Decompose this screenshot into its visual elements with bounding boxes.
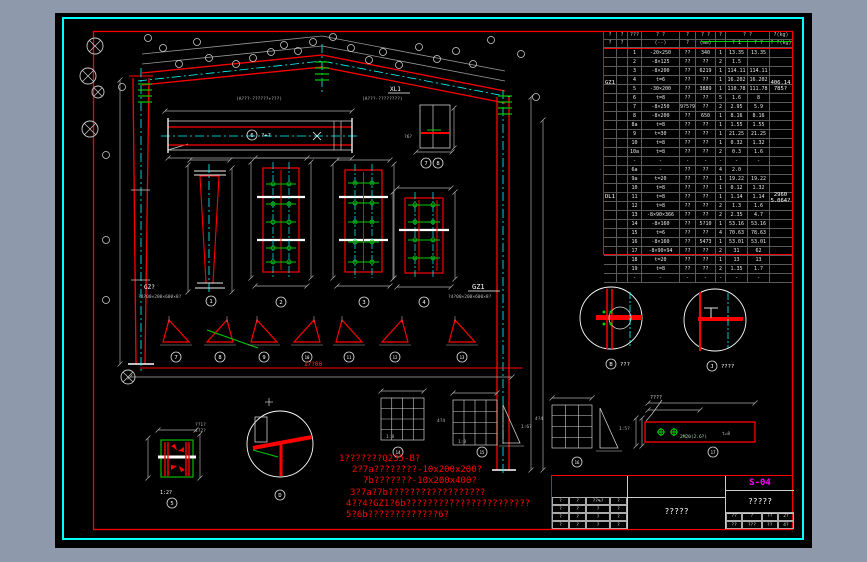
revision-cell: ? xyxy=(610,521,627,529)
group-label-gz1: GZ1 xyxy=(605,80,615,86)
strip-bolt-label: 2M20(2.6?) xyxy=(680,434,707,440)
table-row: 6a-????42.0 xyxy=(604,166,792,175)
title-block-cell: ?? xyxy=(762,512,778,521)
table-row: 12t=8????21.31.6 xyxy=(604,202,792,211)
grid1-scale-label: 1:8 xyxy=(386,434,394,440)
revision-cell: ??%? xyxy=(586,497,610,505)
note-line: 4??4?GZ1?6b??????????????????????? xyxy=(346,499,530,510)
revision-cell: ? xyxy=(569,505,586,513)
table-row: ?????? ??? ??? ??(kg) xyxy=(604,32,792,40)
table-row: 15t=6????470.6378.63 xyxy=(604,229,792,238)
strip-thickness-label: t=8 xyxy=(722,431,730,437)
revision-cell: ? xyxy=(610,497,627,505)
table-row: 17-8×90×94????23162 xyxy=(604,247,792,256)
column-section-detail xyxy=(158,440,196,477)
group2-total-alt: 5.064? xyxy=(769,198,792,204)
svg-text:?+?: ?+? xyxy=(261,133,271,139)
title-block: ????%?????????????? ????? S-04 ????? ???… xyxy=(551,475,793,530)
svg-text:B: B xyxy=(609,362,613,368)
title-block-cell: ?? xyxy=(726,512,742,521)
svg-text:D: D xyxy=(278,493,281,499)
gz1-label: GZ1 xyxy=(472,283,485,291)
project-name-cell: ????? xyxy=(628,476,726,529)
svg-text:10: 10 xyxy=(305,355,310,360)
revision-cell: ? xyxy=(569,513,586,521)
revision-cell: ? xyxy=(552,521,569,529)
svg-text:1: 1 xyxy=(209,299,212,305)
revision-table: ????%?????????????? xyxy=(552,476,628,529)
general-notes: 1???????Q235-B?2?7a????????-10x200x200?7… xyxy=(334,454,530,521)
table-row: 10t=8????10.121.32 xyxy=(604,184,792,193)
drawing-number: S-04 xyxy=(726,476,794,491)
svg-text:13: 13 xyxy=(460,355,465,360)
group1-total-alt: 785? xyxy=(769,86,792,92)
table-row: 5-30×200??38891110.78111.78 xyxy=(604,85,792,94)
note-line: 3?7a?7b?????????????????? xyxy=(350,488,530,499)
section-scale-label: 1:2? xyxy=(160,490,172,496)
table-row: 11t=8????11.141.14 xyxy=(604,193,792,202)
grid3-dim-label: 4?4 xyxy=(535,416,543,422)
svg-text:8: 8 xyxy=(436,161,439,167)
strip-callout-label: ???? xyxy=(650,395,662,401)
svg-text:3: 3 xyxy=(362,300,365,306)
table-row: 10t=8????10.321.32 xyxy=(604,139,792,148)
weld-detail-circle xyxy=(247,398,313,477)
title-block-cell: 2? xyxy=(778,512,794,521)
svg-text:8: 8 xyxy=(218,355,221,361)
revision-cell: ? xyxy=(552,505,569,513)
table-row: 19t=8????21.351.7 xyxy=(604,265,792,274)
drawing-number-cell: S-04 ????? ?????2????????4? xyxy=(726,476,794,529)
title-block-cell: 4? xyxy=(778,521,794,530)
header-accent-line xyxy=(701,41,792,42)
gz-left-sub-label: ?4?00×200×600×8? xyxy=(138,294,182,300)
table-row: ------- xyxy=(604,274,792,283)
svg-text:???: ??? xyxy=(620,362,630,368)
svg-text:9: 9 xyxy=(262,355,265,361)
gz1-sub-label: ?4?00×200×600×8? xyxy=(448,294,492,300)
table-row: 9t=30????121.2521.25 xyxy=(604,130,792,139)
title-block-cell: ??? xyxy=(742,521,761,530)
svg-text:7: 7 xyxy=(424,161,427,167)
table-row: 1-20×250??340113.3513.35 xyxy=(604,49,792,58)
table-row: 10at=8????20.31.6 xyxy=(604,148,792,157)
table-row: 16-8×160??5473153.0153.01 xyxy=(604,238,792,247)
svg-text:12: 12 xyxy=(393,355,398,360)
cad-viewer-window: { "colors": { "background": "#8e9aab", "… xyxy=(0,0,867,562)
svg-text:5: 5 xyxy=(170,501,173,507)
revision-cell: ? xyxy=(569,521,586,529)
table-row: 6t=8????51.68 xyxy=(604,94,792,103)
revision-cell: ? xyxy=(586,505,610,513)
note-line: 7b???????-10x200x400? xyxy=(363,476,530,487)
group1-total: 406.14 785? xyxy=(769,80,792,92)
svg-text:7: 7 xyxy=(174,355,177,361)
table-row: 7-8×2509?5?9??22.955.9 xyxy=(604,103,792,112)
svg-text:16: 16 xyxy=(575,460,580,465)
taper-column-detail xyxy=(194,164,226,293)
tri3-scale-label: 1:5? xyxy=(619,426,630,432)
detail-circle-j xyxy=(684,289,746,351)
table-row: ------- xyxy=(604,157,792,166)
revision-cell: ? xyxy=(569,497,586,505)
table-row: 18t=20????11313 xyxy=(604,256,792,265)
revision-cell: ? xyxy=(552,513,569,521)
grid2-scale-label: 1:8 xyxy=(458,439,466,445)
note-line: 2?7a????????-10x200x200? xyxy=(352,465,530,476)
beam-note-label: (A???·??????+???) xyxy=(236,96,282,102)
title-block-cell: ?? xyxy=(762,521,778,530)
note-line: 5?6b?????????????6? xyxy=(346,510,530,521)
group-label-dl1: DL1 xyxy=(605,194,615,200)
svg-text:4: 4 xyxy=(422,300,426,306)
table-row: 8-8×200??65018.168.16 xyxy=(604,112,792,121)
grid2-dim-label: 4?4 xyxy=(437,418,445,424)
section-dim1: ??1? xyxy=(195,422,206,428)
beam-detail xyxy=(161,118,358,153)
table-row: 3-8×200??62191114.11114.11 xyxy=(604,67,792,76)
title-block-cell: ? xyxy=(742,512,761,521)
table-row: 4t=6????116.20216.202 xyxy=(604,76,792,85)
revision-cell: ? xyxy=(586,513,610,521)
parts-table: ?????? ??? ??? ??(kg)??(--)?(mm)? 1? ?? … xyxy=(603,31,793,255)
title-block-spacer xyxy=(628,476,725,498)
table-row: 2-8×125????21.5 xyxy=(604,58,792,67)
svg-text:2: 2 xyxy=(279,300,282,306)
hole-dia-label: ?6? xyxy=(404,134,412,140)
project-name: ????? xyxy=(628,498,725,516)
revision-cell: ? xyxy=(610,513,627,521)
xl1-label: XL1 xyxy=(390,86,401,93)
table-row: 14-8×160??5?10153.1653.16 xyxy=(604,220,792,229)
table-row: 13-8×90×366????22.354.7 xyxy=(604,211,792,220)
svg-text:J: J xyxy=(710,364,713,370)
title-block-cell: ?? xyxy=(726,521,742,530)
detail-circle-b xyxy=(580,287,642,349)
tri2-scale-label: 1:6? xyxy=(521,424,532,430)
parts-table-body: 1-20×250??340113.3513.352-8×125????21.53… xyxy=(604,49,792,283)
group2-total: 2960 5.064? xyxy=(769,192,792,204)
span-dimension: 17?00 xyxy=(304,361,322,368)
revision-cell: ? xyxy=(610,505,627,513)
svg-text:????: ???? xyxy=(721,364,734,370)
drawing-title: ????? xyxy=(726,491,794,514)
cap-plate-detail xyxy=(420,105,450,148)
table-row: 8at=8????11.551.55 xyxy=(604,121,792,130)
table-row: 9at=20????119.2219.22 xyxy=(604,175,792,184)
revision-cell: ? xyxy=(586,521,610,529)
ridge-note-label: (A???·????????) xyxy=(362,96,403,102)
gz-left-label: GZ? xyxy=(144,284,155,291)
svg-text:6: 6 xyxy=(250,133,253,139)
note-line: 1???????Q235-B? xyxy=(339,454,530,465)
revision-cell: ? xyxy=(552,497,569,505)
section-dim2: 4?2? xyxy=(195,428,206,434)
svg-text:17: 17 xyxy=(711,450,716,455)
svg-text:11: 11 xyxy=(347,355,352,360)
